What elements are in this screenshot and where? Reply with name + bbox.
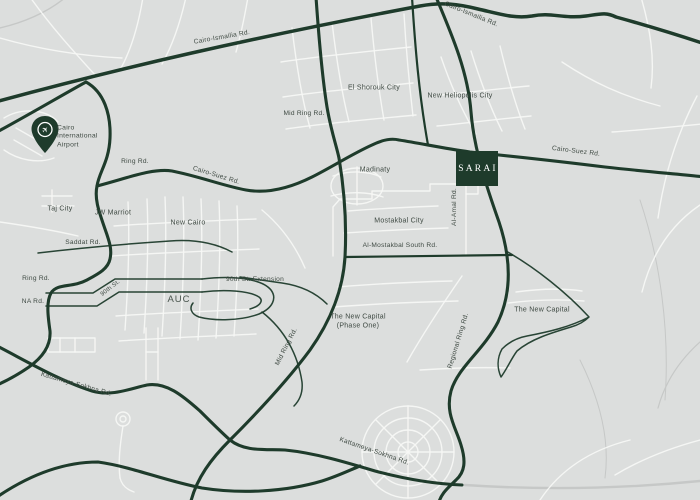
sarai-marker-label: SARAI <box>456 164 498 174</box>
road-label-al-amal: Al-Amal Rd. <box>451 188 459 226</box>
place-label-jw-marriot: JW Marriot <box>95 210 131 219</box>
place-label-new-heliopolis-city: New Heliopolis City <box>427 93 492 102</box>
road-label-mid-ring-1: Mid Ring Rd. <box>283 110 324 118</box>
place-label-taj-city: Taj City <box>48 206 73 215</box>
airplane-pin-icon[interactable]: ✈ <box>32 116 59 153</box>
road-heliopolis-connector <box>412 0 428 145</box>
major-roads <box>0 0 700 500</box>
place-label-new-capital-phase-one-line1: The New Capital <box>330 313 386 322</box>
sarai-marker[interactable]: SARAI <box>456 151 498 186</box>
road-label-al-mostakbal-south: Al-Mostakbal South Rd. <box>363 242 438 250</box>
place-label-el-shorouk-city: El Shorouk City <box>348 85 400 94</box>
road-al-mostakbal-south <box>345 255 512 257</box>
road-network-svg: ✈ <box>0 0 700 500</box>
airport-label: Cairo International Airport <box>57 124 101 149</box>
place-label-madinaty: Madinaty <box>360 167 390 176</box>
connector-roads <box>345 0 512 257</box>
place-label-the-new-capital: The New Capital <box>514 307 570 316</box>
place-label-mostakbal-city: Mostakbal City <box>374 218 423 227</box>
place-label-new-cairo: New Cairo <box>171 220 206 229</box>
road-south-bypass <box>0 462 360 497</box>
interchange-circle <box>116 412 130 426</box>
place-label-auc: AUC <box>167 294 190 306</box>
road-label-ring-1: Ring Rd. <box>121 158 149 166</box>
place-label-new-capital-phase-one-line2: (Phase One) <box>330 322 386 331</box>
road-label-saddat: Saddat Rd. <box>65 239 101 247</box>
road-label-ring-2: Ring Rd. <box>22 275 50 283</box>
place-label-new-capital-phase-one: The New Capital (Phase One) <box>330 313 386 331</box>
road-cairo-suez <box>97 139 700 191</box>
road-label-na: NA Rd. <box>22 298 44 306</box>
map-canvas: ✈ Cairo-Ismailia Rd. Cairo-Ismailia Rd. … <box>0 0 700 500</box>
road-label-90th-st-extension: 90th St. Extension <box>226 276 284 284</box>
